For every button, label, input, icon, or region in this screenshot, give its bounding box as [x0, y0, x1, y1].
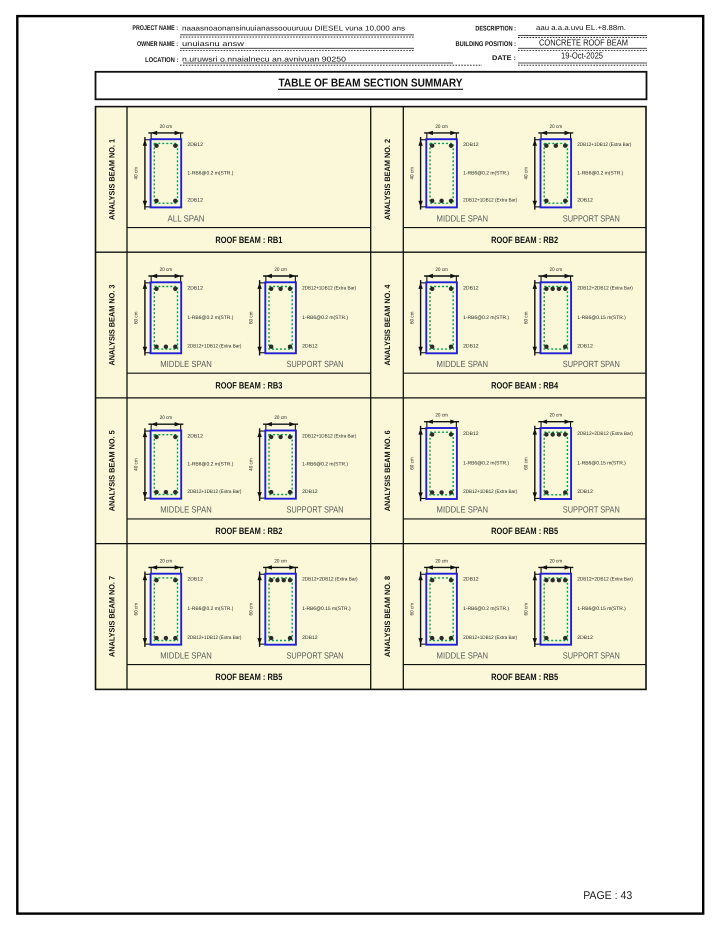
svg-text:MIDDLE SPAN: MIDDLE SPAN — [160, 650, 212, 660]
svg-text:19-Oct-2025: 19-Oct-2025 — [561, 51, 603, 61]
svg-text:20 cm: 20 cm — [274, 267, 287, 273]
svg-text:2DB12+2DB12 (Extra Bar): 2DB12+2DB12 (Extra Bar) — [577, 577, 633, 583]
svg-text:20 cm: 20 cm — [435, 267, 448, 273]
svg-text:aau a.a.a.uvu EL.+8.88m.: aau a.a.a.uvu EL.+8.88m. — [536, 23, 626, 32]
svg-text:SUPPORT SPAN: SUPPORT SPAN — [563, 359, 620, 369]
svg-text:2DB12: 2DB12 — [463, 431, 479, 437]
svg-text:2DB12: 2DB12 — [187, 434, 203, 440]
svg-text:2DB12: 2DB12 — [577, 635, 593, 641]
svg-text:20 cm: 20 cm — [550, 267, 563, 273]
svg-text:2DB12+2DB12 (Extra Bar): 2DB12+2DB12 (Extra Bar) — [302, 577, 358, 583]
svg-text:20 cm: 20 cm — [435, 558, 448, 564]
svg-text:ROOF BEAM : RB5: ROOF BEAM : RB5 — [491, 526, 558, 536]
svg-text:20 cm: 20 cm — [550, 558, 563, 564]
svg-text:ROOF BEAM : RB2: ROOF BEAM : RB2 — [491, 235, 558, 245]
svg-text:MIDDLE SPAN: MIDDLE SPAN — [437, 505, 489, 515]
svg-text:MIDDLE SPAN: MIDDLE SPAN — [437, 213, 489, 223]
svg-text:40 cm: 40 cm — [524, 167, 530, 180]
svg-text:60 cm: 60 cm — [409, 457, 415, 470]
svg-text:ROOF BEAM : RB4: ROOF BEAM : RB4 — [491, 381, 559, 391]
svg-text:MIDDLE SPAN: MIDDLE SPAN — [160, 505, 212, 515]
svg-text:MIDDLE SPAN: MIDDLE SPAN — [160, 359, 212, 369]
svg-text:2DB12: 2DB12 — [187, 285, 203, 291]
svg-text:MIDDLE SPAN: MIDDLE SPAN — [437, 359, 489, 369]
svg-text:2DB12+1DB12 (Extra Bar): 2DB12+1DB12 (Extra Bar) — [187, 635, 241, 641]
svg-text:n.uruwsri o.nnaialnecu an.av: n.uruwsri o.nnaialnecu an.avnivuan 90250 — [182, 55, 346, 63]
svg-text:20 cm: 20 cm — [274, 415, 287, 421]
svg-text:2DB12: 2DB12 — [187, 198, 203, 204]
svg-text:1-RB6@0.2 m(STR.): 1-RB6@0.2 m(STR.) — [463, 461, 509, 467]
svg-text:20 cm: 20 cm — [160, 558, 173, 564]
svg-text:2DB12: 2DB12 — [463, 285, 479, 291]
svg-text:1-RB6@0.2 m(STR.): 1-RB6@0.2 m(STR.) — [187, 170, 233, 176]
svg-text:2DB12+1DB12 (Extra Bar): 2DB12+1DB12 (Extra Bar) — [463, 635, 517, 641]
svg-text:SUPPORT SPAN: SUPPORT SPAN — [287, 505, 344, 515]
svg-text:60 cm: 60 cm — [134, 603, 140, 616]
svg-text:BUILDING POSITION :: BUILDING POSITION : — [456, 41, 517, 48]
svg-text:60 cm: 60 cm — [409, 603, 415, 616]
svg-text:SUPPORT SPAN: SUPPORT SPAN — [287, 650, 344, 660]
svg-text:OWNER NAME :: OWNER NAME : — [137, 41, 178, 48]
svg-text:20 cm: 20 cm — [435, 413, 448, 419]
svg-text:2DB12+1DB12 (Extra Bar): 2DB12+1DB12 (Extra Bar) — [302, 434, 356, 440]
svg-text:ANALYSIS BEAM NO. 5: ANALYSIS BEAM NO. 5 — [107, 430, 116, 512]
svg-text:ANALYSIS BEAM NO. 8: ANALYSIS BEAM NO. 8 — [383, 575, 392, 657]
svg-text:60 cm: 60 cm — [248, 312, 254, 325]
svg-text:1-RB6@0.2 m(STR.): 1-RB6@0.2 m(STR.) — [187, 606, 233, 612]
svg-text:2DB12: 2DB12 — [302, 635, 318, 641]
svg-text:2DB12+1DB12 (Extra Bar): 2DB12+1DB12 (Extra Bar) — [187, 343, 241, 349]
svg-text:2DB12: 2DB12 — [577, 198, 593, 204]
svg-text:2DB12: 2DB12 — [577, 489, 593, 495]
svg-text:2DB12: 2DB12 — [187, 577, 203, 583]
svg-text:CONCRETE ROOF BEAM: CONCRETE ROOF BEAM — [539, 37, 628, 47]
svg-text:SUPPORT SPAN: SUPPORT SPAN — [563, 650, 620, 660]
svg-text:20 cm: 20 cm — [550, 413, 563, 419]
svg-text:ALL SPAN: ALL SPAN — [168, 213, 205, 223]
svg-text:DESCRIPTION :: DESCRIPTION : — [475, 25, 516, 32]
svg-text:1-RB6@0.2 m(STR.): 1-RB6@0.2 m(STR.) — [463, 606, 509, 612]
svg-text:1-RB6@0.2 m(STR.): 1-RB6@0.2 m(STR.) — [187, 462, 233, 468]
svg-text:20 cm: 20 cm — [550, 124, 563, 130]
svg-text:1-RB6@0.2 m(STR.): 1-RB6@0.2 m(STR.) — [463, 315, 509, 321]
svg-text:2DB12: 2DB12 — [577, 343, 593, 349]
svg-text:2DB12: 2DB12 — [302, 489, 318, 495]
svg-text:unuiasnu answ: unuiasnu answ — [182, 40, 245, 48]
svg-text:20 cm: 20 cm — [160, 124, 173, 130]
svg-text:2DB12: 2DB12 — [463, 577, 479, 583]
svg-text:PAGE : 43: PAGE : 43 — [583, 890, 632, 902]
svg-text:60 cm: 60 cm — [524, 603, 530, 616]
svg-text:SUPPORT SPAN: SUPPORT SPAN — [287, 359, 344, 369]
svg-text:2DB12+1DB12 (Extra Bar): 2DB12+1DB12 (Extra Bar) — [463, 489, 517, 495]
svg-text:naaasnoaonansinuuianassoouuruu: naaasnoaonansinuuianassoouuruuu DIESEL v… — [182, 24, 406, 32]
svg-text:40 cm: 40 cm — [134, 167, 140, 180]
svg-text:SUPPORT SPAN: SUPPORT SPAN — [563, 505, 620, 515]
svg-text:1-RB6@0.15 m(STR.): 1-RB6@0.15 m(STR.) — [577, 315, 626, 321]
svg-text:2DB12+1DB12 (Extra Bar): 2DB12+1DB12 (Extra Bar) — [187, 489, 241, 495]
svg-text:ROOF BEAM : RB2: ROOF BEAM : RB2 — [215, 526, 282, 536]
svg-text:1-RB6@0.2 m(STR.): 1-RB6@0.2 m(STR.) — [577, 170, 623, 176]
svg-text:ROOF BEAM : RB5: ROOF BEAM : RB5 — [215, 672, 282, 682]
svg-text:1-RB6@0.15 m(STR.): 1-RB6@0.15 m(STR.) — [577, 461, 626, 467]
svg-text:MIDDLE SPAN: MIDDLE SPAN — [437, 650, 489, 660]
svg-text:40 cm: 40 cm — [134, 458, 140, 471]
svg-text:ROOF BEAM : RB5: ROOF BEAM : RB5 — [491, 672, 558, 682]
svg-text:2DB12: 2DB12 — [187, 142, 203, 148]
svg-text:1-RB6@0.2 m(STR.): 1-RB6@0.2 m(STR.) — [463, 170, 509, 176]
svg-text:2DB12+2DB12 (Extra Bar): 2DB12+2DB12 (Extra Bar) — [577, 431, 633, 437]
svg-text:DATE :: DATE : — [492, 55, 516, 62]
svg-text:60 cm: 60 cm — [524, 457, 530, 470]
svg-text:1-RB6@0.15 m(STR.): 1-RB6@0.15 m(STR.) — [577, 606, 626, 612]
svg-text:2DB12+2DB12 (Extra Bar): 2DB12+2DB12 (Extra Bar) — [577, 285, 633, 291]
svg-text:60 cm: 60 cm — [524, 312, 530, 325]
svg-text:ANALYSIS BEAM NO. 3: ANALYSIS BEAM NO. 3 — [107, 284, 116, 366]
svg-text:40 cm: 40 cm — [409, 167, 415, 180]
svg-text:2DB12+1DB12 (Extra Bar): 2DB12+1DB12 (Extra Bar) — [463, 198, 517, 204]
svg-text:2DB12+1DB12 (Extra Bar): 2DB12+1DB12 (Extra Bar) — [302, 285, 356, 291]
svg-text:2DB12: 2DB12 — [463, 142, 479, 148]
svg-text:1-RB6@0.15 m(STR.): 1-RB6@0.15 m(STR.) — [302, 606, 351, 612]
svg-text:ANALYSIS BEAM NO. 1: ANALYSIS BEAM NO. 1 — [107, 138, 116, 220]
svg-text:20 cm: 20 cm — [160, 267, 173, 273]
svg-text:1-RB6@0.2 m(STR.): 1-RB6@0.2 m(STR.) — [302, 462, 348, 468]
svg-text:ROOF BEAM : RB3: ROOF BEAM : RB3 — [215, 381, 282, 391]
svg-text:ANALYSIS BEAM NO. 4: ANALYSIS BEAM NO. 4 — [383, 284, 392, 366]
svg-text:40 cm: 40 cm — [248, 458, 254, 471]
svg-text:60 cm: 60 cm — [134, 312, 140, 325]
svg-text:ANALYSIS BEAM NO. 2: ANALYSIS BEAM NO. 2 — [383, 138, 392, 220]
svg-text:2DB12+1DB12 (Extra Bar): 2DB12+1DB12 (Extra Bar) — [577, 142, 631, 148]
svg-text:20 cm: 20 cm — [160, 415, 173, 421]
svg-text:1-RB6@0.2 m(STR.): 1-RB6@0.2 m(STR.) — [187, 315, 233, 321]
svg-text:1-RB6@0.2 m(STR.): 1-RB6@0.2 m(STR.) — [302, 315, 348, 321]
svg-text:ANALYSIS BEAM NO. 7: ANALYSIS BEAM NO. 7 — [107, 576, 116, 657]
svg-text:2DB12: 2DB12 — [302, 343, 318, 349]
svg-text:SUPPORT SPAN: SUPPORT SPAN — [563, 213, 620, 223]
svg-text:PROJECT NAME :: PROJECT NAME : — [132, 25, 178, 32]
svg-text:2DB12: 2DB12 — [463, 343, 479, 349]
svg-text:ROOF BEAM : RB1: ROOF BEAM : RB1 — [215, 235, 282, 245]
svg-text:TABLE OF BEAM SECTION SUMMARY: TABLE OF BEAM SECTION SUMMARY — [279, 78, 463, 90]
svg-text:20 cm: 20 cm — [435, 124, 448, 130]
svg-text:ANALYSIS BEAM NO. 6: ANALYSIS BEAM NO. 6 — [383, 430, 392, 512]
svg-text:60 cm: 60 cm — [248, 603, 254, 616]
svg-text:60 cm: 60 cm — [409, 312, 415, 325]
svg-text:20 cm: 20 cm — [274, 558, 287, 564]
svg-text:LOCATION :: LOCATION : — [145, 57, 178, 64]
